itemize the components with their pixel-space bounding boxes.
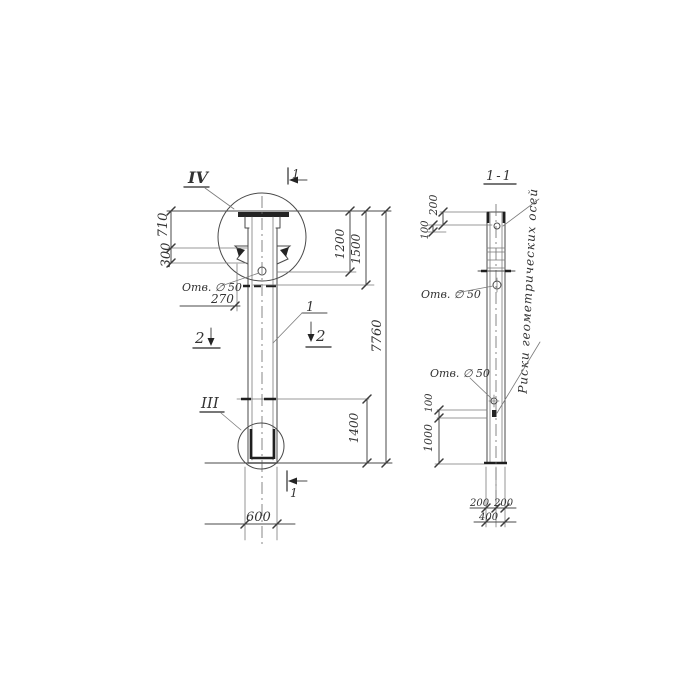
section-1-bottom-label: 1 bbox=[290, 486, 298, 500]
dim-300: 300 bbox=[159, 243, 174, 268]
extension-lines-600 bbox=[245, 467, 277, 540]
dim-270: 270 bbox=[210, 292, 234, 306]
axes-note-label: Риски геометрических осей bbox=[516, 188, 541, 395]
section-2-left-label: 2 bbox=[194, 329, 205, 347]
extension-lines-mid bbox=[435, 410, 487, 464]
drawing-canvas: 710 300 1200 1500 7760 1400 Отв. ∅ 50 27… bbox=[0, 0, 700, 700]
flange-left-fill bbox=[236, 247, 245, 257]
left-elevation-view: 710 300 1200 1500 7760 1400 Отв. ∅ 50 27… bbox=[156, 167, 392, 545]
dim-200-bottom-right: 200 bbox=[493, 498, 514, 509]
hole-upper-mark bbox=[494, 223, 500, 229]
embedded-sleeve bbox=[251, 429, 274, 459]
detail-label-iii: III bbox=[200, 394, 220, 412]
cap-plate bbox=[238, 212, 289, 217]
flange-right-fill bbox=[280, 247, 289, 257]
collar bbox=[245, 217, 280, 228]
detail-iv-leader bbox=[205, 188, 234, 209]
dim-200-top: 200 bbox=[427, 195, 440, 217]
section-2-right-arrowhead-icon bbox=[308, 334, 315, 342]
dim-400: 400 bbox=[478, 512, 499, 523]
dim-100-top: 100 bbox=[420, 220, 431, 240]
dim-100-mid: 100 bbox=[424, 393, 435, 413]
extension-lines-right-upper bbox=[253, 272, 374, 285]
dim-200-bottom-left: 200 bbox=[469, 498, 490, 509]
dim-1400: 1400 bbox=[347, 412, 361, 443]
dim-710: 710 bbox=[156, 213, 171, 238]
section-2-right-label: 2 bbox=[315, 327, 326, 345]
dim-7760: 7760 bbox=[370, 319, 385, 352]
extension-lines-left bbox=[168, 248, 248, 263]
detail-label-iv: IV bbox=[187, 168, 209, 187]
dim-1000: 1000 bbox=[422, 424, 435, 452]
hole-label-lower-section: Отв. ∅ 50 bbox=[430, 367, 490, 380]
section-1-1-view: 1-1 200 bbox=[420, 169, 540, 527]
section-view-title: 1-1 bbox=[486, 169, 513, 184]
detail-iii-leader bbox=[221, 413, 241, 430]
section-1-bottom-arrowhead-icon bbox=[288, 478, 297, 485]
section-2-left-arrowhead-icon bbox=[208, 338, 215, 346]
dim-1200: 1200 bbox=[333, 228, 347, 259]
section-1-top-label: 1 bbox=[292, 167, 300, 181]
dim-1500: 1500 bbox=[349, 233, 363, 264]
section-bar-outline bbox=[478, 204, 515, 520]
axis-mark-square bbox=[492, 410, 497, 417]
hole-50-lower-cross bbox=[489, 395, 499, 407]
hole-leader-lower-section bbox=[470, 378, 492, 399]
dim-600: 600 bbox=[246, 510, 271, 525]
